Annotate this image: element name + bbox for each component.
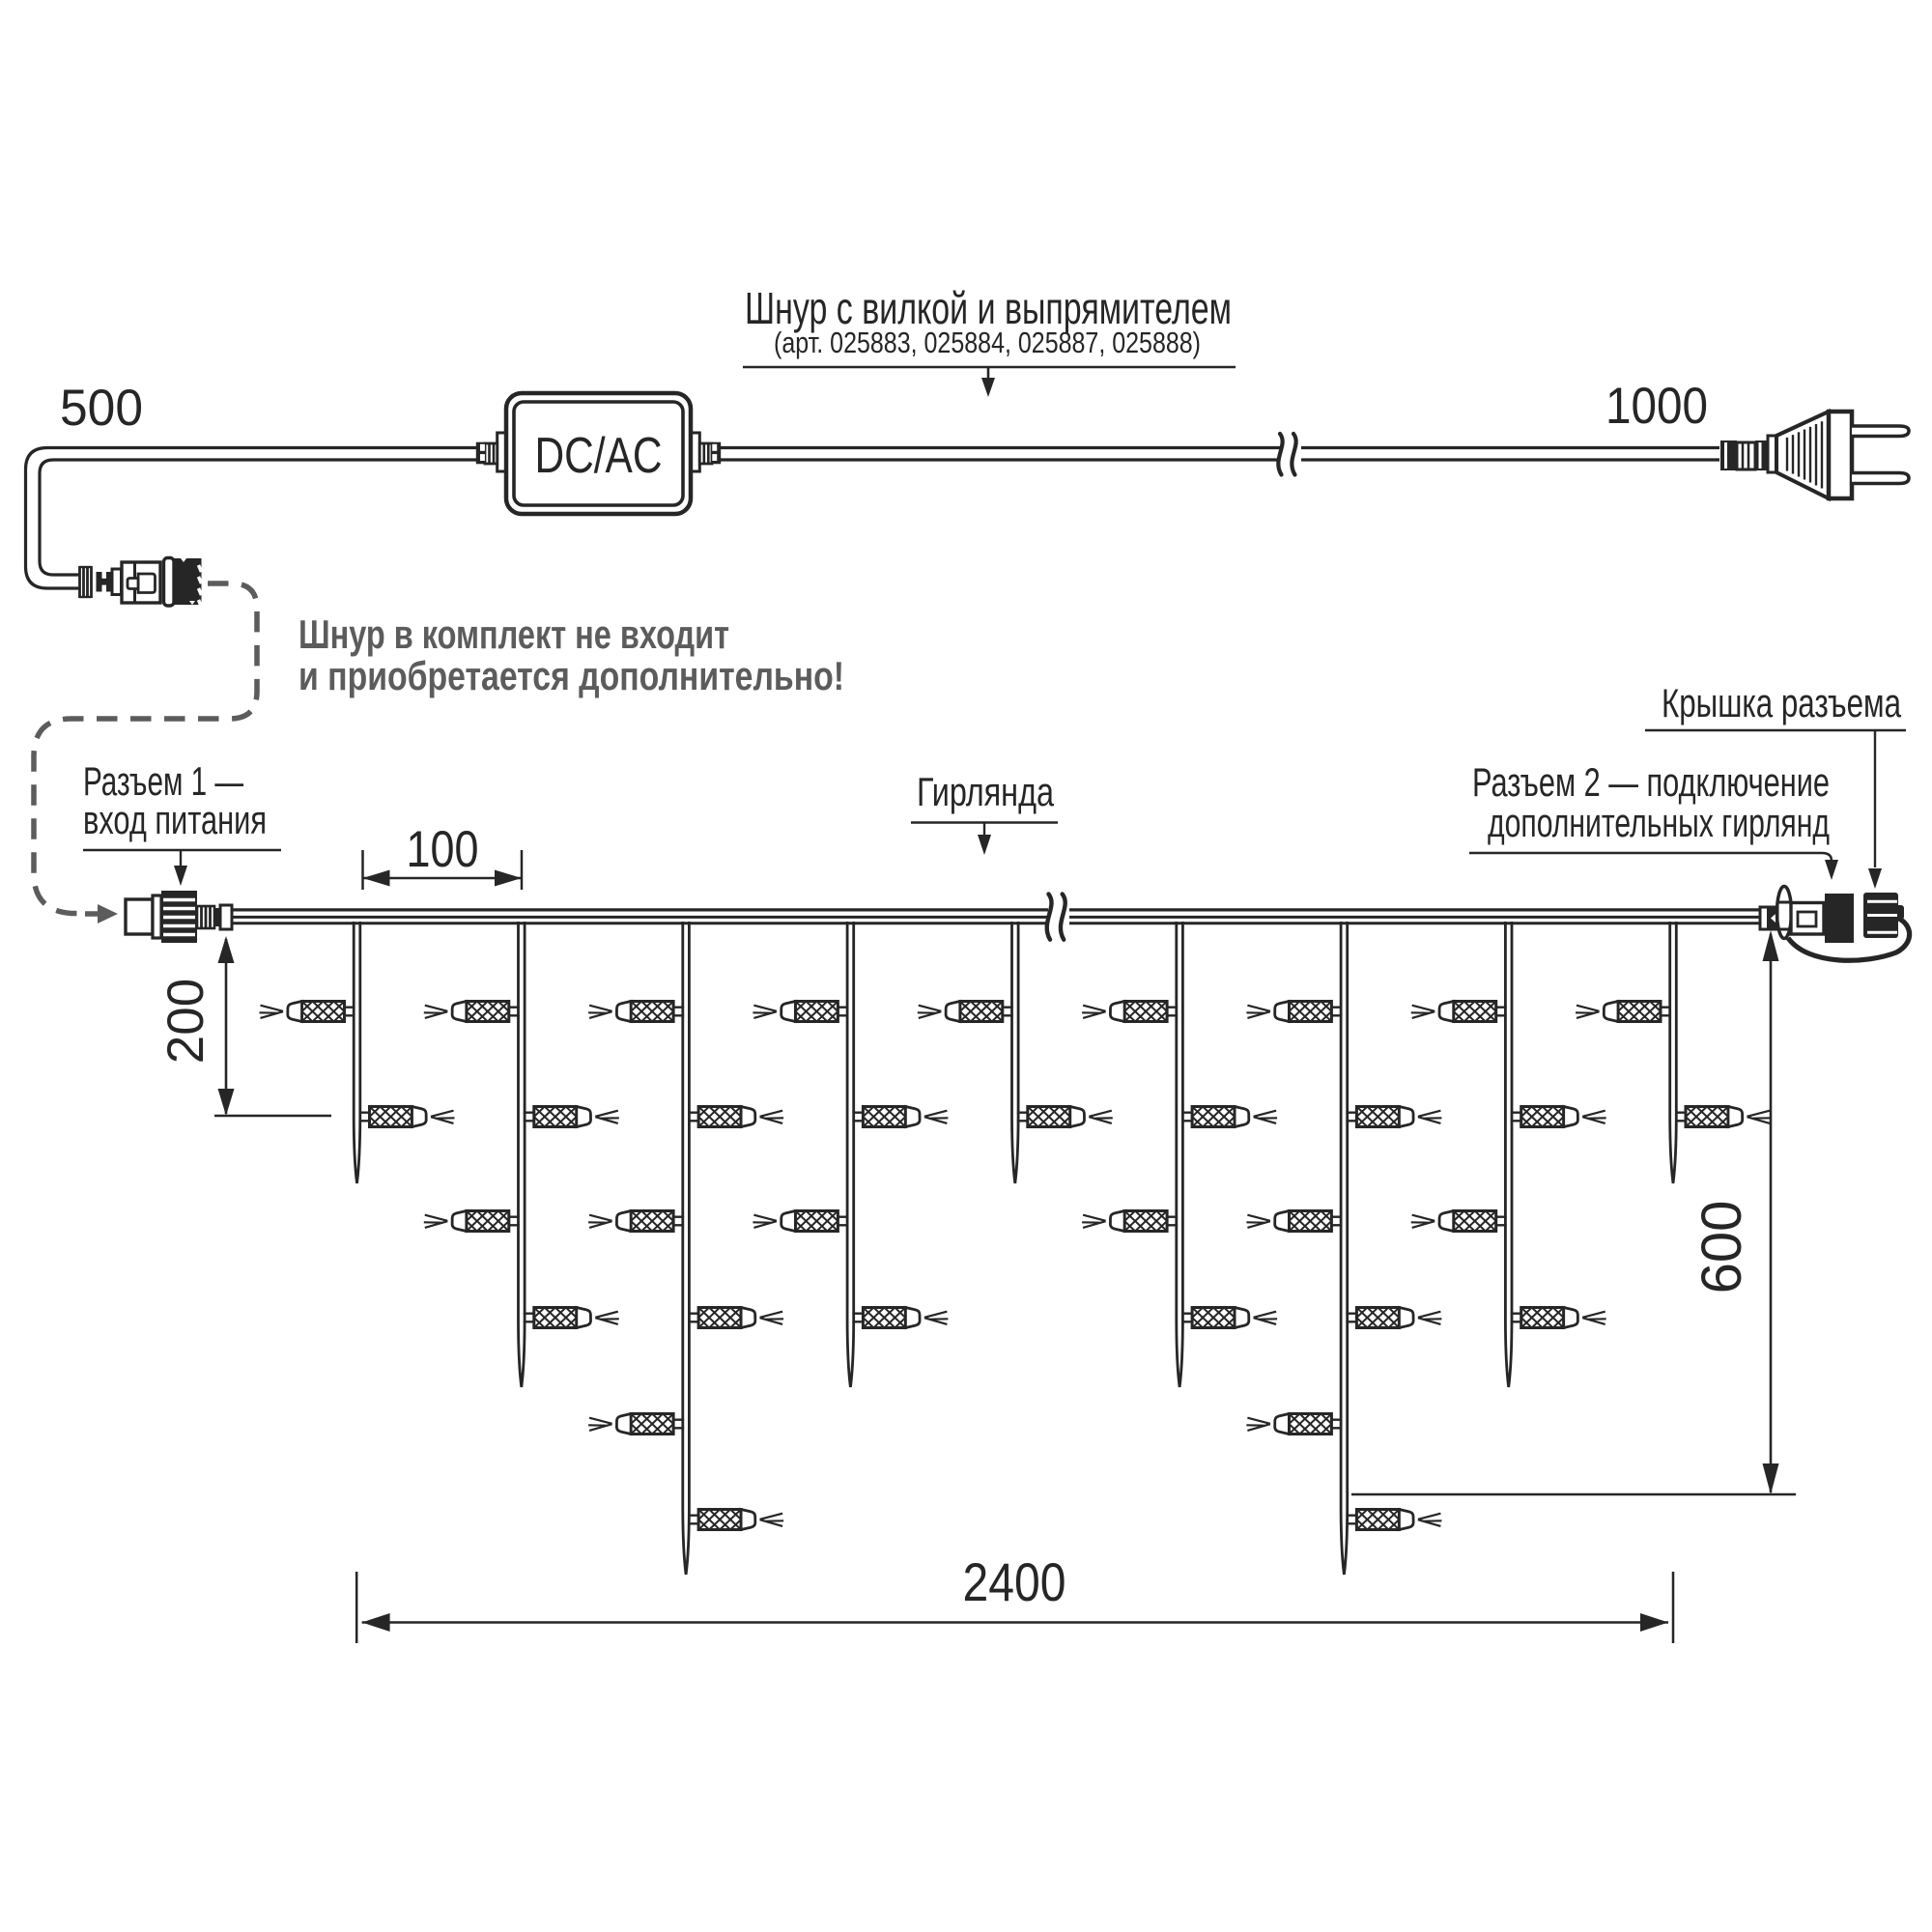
svg-text:Крышка разъема: Крышка разъема — [1662, 680, 1901, 725]
svg-text:100: 100 — [407, 821, 479, 878]
svg-text:DC/AC: DC/AC — [535, 428, 663, 484]
svg-text:дополнительных гирлянд: дополнительных гирлянд — [1488, 800, 1830, 845]
svg-text:500: 500 — [60, 380, 143, 437]
svg-text:(арт. 025883, 025884, 025887,: (арт. 025883, 025884, 025887, 025888) — [774, 326, 1201, 359]
svg-text:200: 200 — [157, 979, 214, 1064]
svg-text:Шнур в комплект не входит: Шнур в комплект не входит — [298, 611, 729, 657]
svg-text:и приобретается дополнительно!: и приобретается дополнительно! — [298, 653, 844, 698]
svg-text:Разъем 2 — подключение: Разъем 2 — подключение — [1472, 759, 1830, 805]
svg-text:вход питания: вход питания — [83, 797, 267, 842]
svg-text:Гирлянда: Гирлянда — [917, 769, 1054, 814]
svg-text:600: 600 — [1690, 1201, 1753, 1294]
svg-text:2400: 2400 — [963, 1551, 1066, 1612]
svg-text:1000: 1000 — [1605, 378, 1708, 435]
